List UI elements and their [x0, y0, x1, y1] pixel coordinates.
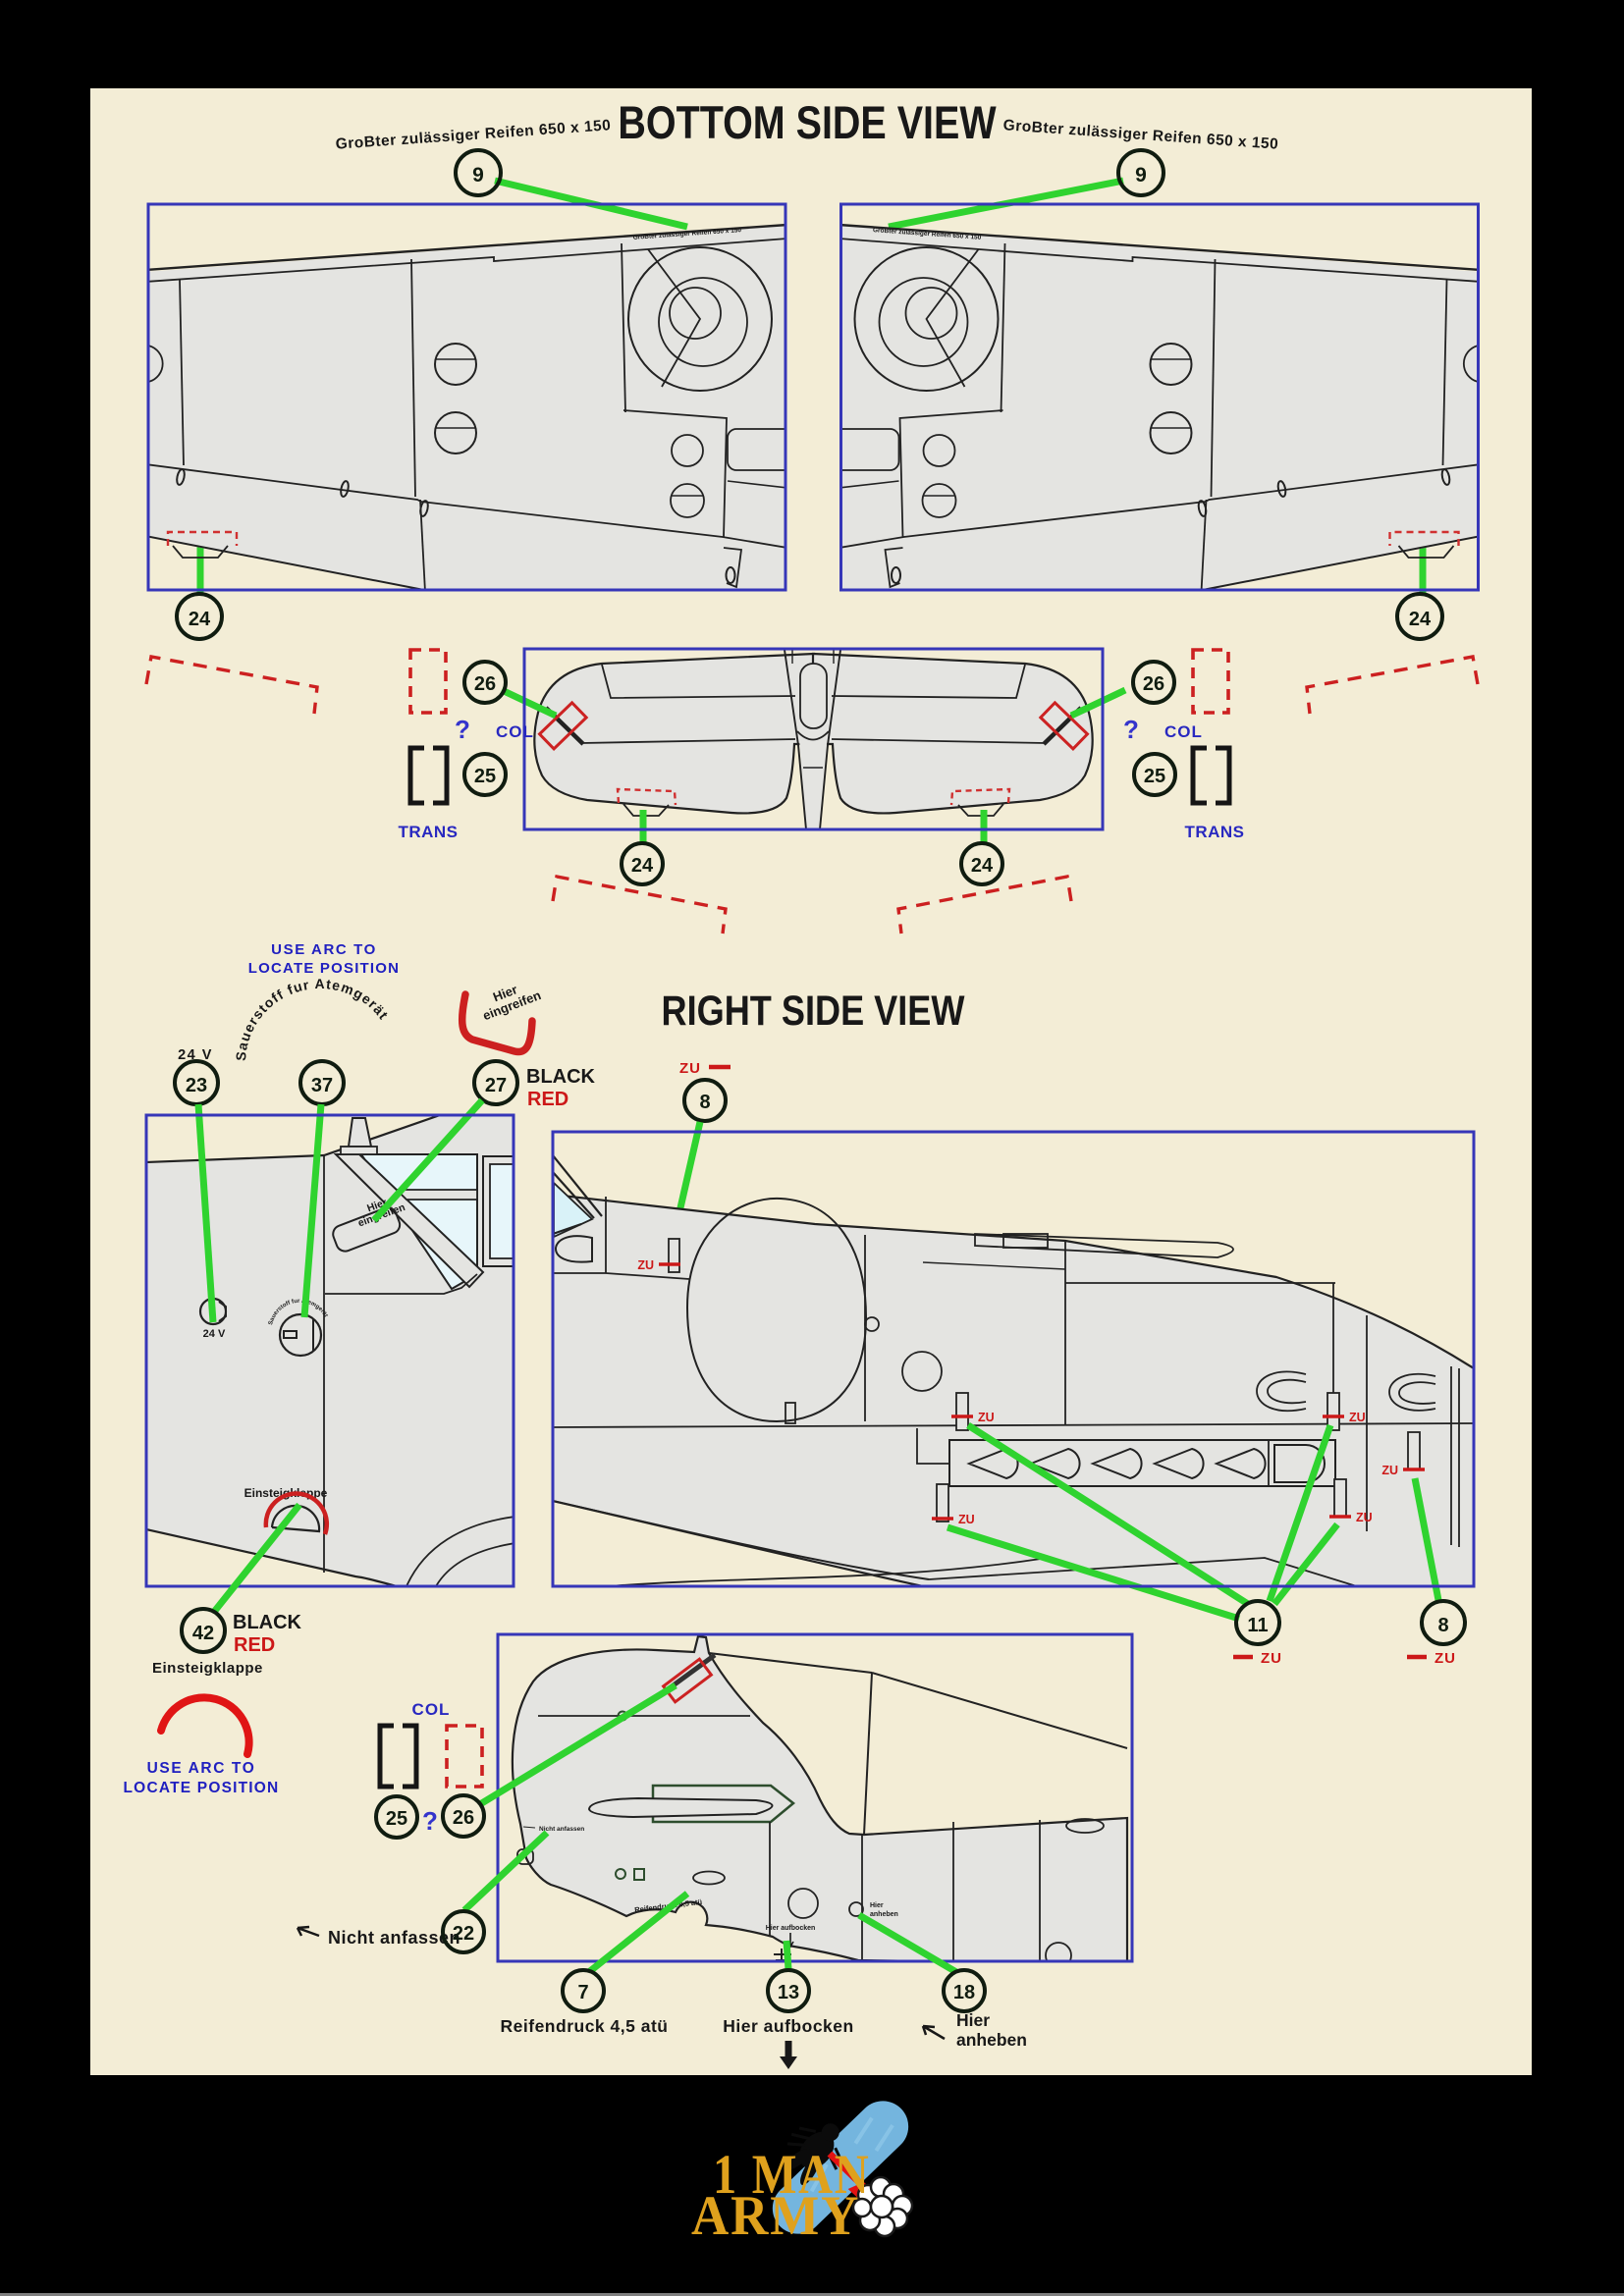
svg-text:24 V: 24 V [203, 1328, 226, 1340]
svg-text:ZU: ZU [1381, 1464, 1398, 1477]
svg-text:?: ? [422, 1806, 438, 1836]
svg-text:27: 27 [485, 1075, 507, 1096]
svg-text:23: 23 [186, 1075, 207, 1096]
svg-text:Hier: Hier [870, 1902, 884, 1909]
svg-text:ZU: ZU [679, 1060, 701, 1077]
svg-text:25: 25 [386, 1808, 407, 1830]
svg-text:ZU: ZU [1356, 1511, 1373, 1524]
svg-text:COL: COL [1164, 722, 1203, 741]
svg-text:RIGHT SIDE VIEW: RIGHT SIDE VIEW [662, 988, 965, 1035]
svg-text:9: 9 [1135, 164, 1147, 187]
svg-text:26: 26 [474, 673, 496, 695]
svg-text:LOCATE POSITION: LOCATE POSITION [248, 960, 400, 977]
svg-text:RED: RED [234, 1634, 275, 1656]
svg-text:anheben: anheben [956, 2030, 1027, 2050]
svg-text:BLACK: BLACK [526, 1066, 596, 1088]
svg-text:BOTTOM SIDE VIEW: BOTTOM SIDE VIEW [618, 98, 996, 149]
svg-text:ZU: ZU [958, 1513, 975, 1526]
svg-text:USE ARC TO: USE ARC TO [271, 941, 377, 958]
svg-text:9: 9 [472, 164, 484, 187]
svg-text:ZU: ZU [978, 1411, 995, 1424]
svg-text:Einsteigklappe: Einsteigklappe [152, 1660, 263, 1677]
svg-text:ARMY: ARMY [691, 2184, 860, 2246]
svg-text:Nicht anfassen: Nicht anfassen [328, 1928, 460, 1948]
svg-text:RED: RED [527, 1089, 568, 1110]
svg-text:COL: COL [496, 722, 534, 741]
svg-text:Hier aufbocken: Hier aufbocken [723, 2016, 853, 2036]
svg-text:24: 24 [1409, 609, 1432, 630]
svg-text:USE ARC TO: USE ARC TO [147, 1760, 256, 1777]
svg-text:37: 37 [311, 1075, 333, 1096]
svg-text:Hier aufbocken: Hier aufbocken [766, 1925, 816, 1932]
svg-text:?: ? [1123, 715, 1139, 744]
svg-text:25: 25 [474, 766, 496, 787]
svg-text:8: 8 [699, 1092, 710, 1113]
svg-text:?: ? [455, 715, 470, 744]
svg-text:ZU: ZU [637, 1258, 654, 1272]
svg-text:25: 25 [1144, 766, 1165, 787]
svg-text:ZU: ZU [1349, 1411, 1366, 1424]
svg-text:22: 22 [453, 1923, 474, 1945]
svg-text:Reifendruck 4,5 atü: Reifendruck 4,5 atü [501, 2016, 669, 2036]
svg-text:LOCATE POSITION: LOCATE POSITION [124, 1780, 280, 1796]
svg-text:BLACK: BLACK [233, 1612, 302, 1633]
svg-text:ZU: ZU [1261, 1650, 1282, 1667]
svg-text:ZU: ZU [1435, 1650, 1456, 1667]
svg-text:TRANS: TRANS [398, 823, 458, 841]
svg-text:Hier: Hier [956, 2010, 990, 2030]
svg-text:26: 26 [1143, 673, 1164, 695]
svg-text:24: 24 [189, 609, 211, 630]
svg-text:24: 24 [631, 855, 654, 877]
svg-text:42: 42 [192, 1623, 214, 1644]
svg-text:COL: COL [412, 1700, 451, 1719]
svg-text:anheben: anheben [870, 1911, 898, 1918]
svg-text:8: 8 [1437, 1615, 1448, 1636]
svg-text:11: 11 [1247, 1615, 1268, 1636]
svg-text:18: 18 [953, 1982, 975, 2003]
svg-text:TRANS: TRANS [1184, 823, 1244, 841]
svg-text:13: 13 [778, 1982, 799, 2003]
svg-text:7: 7 [577, 1982, 588, 2003]
svg-text:26: 26 [453, 1807, 474, 1829]
svg-text:24: 24 [971, 855, 994, 877]
